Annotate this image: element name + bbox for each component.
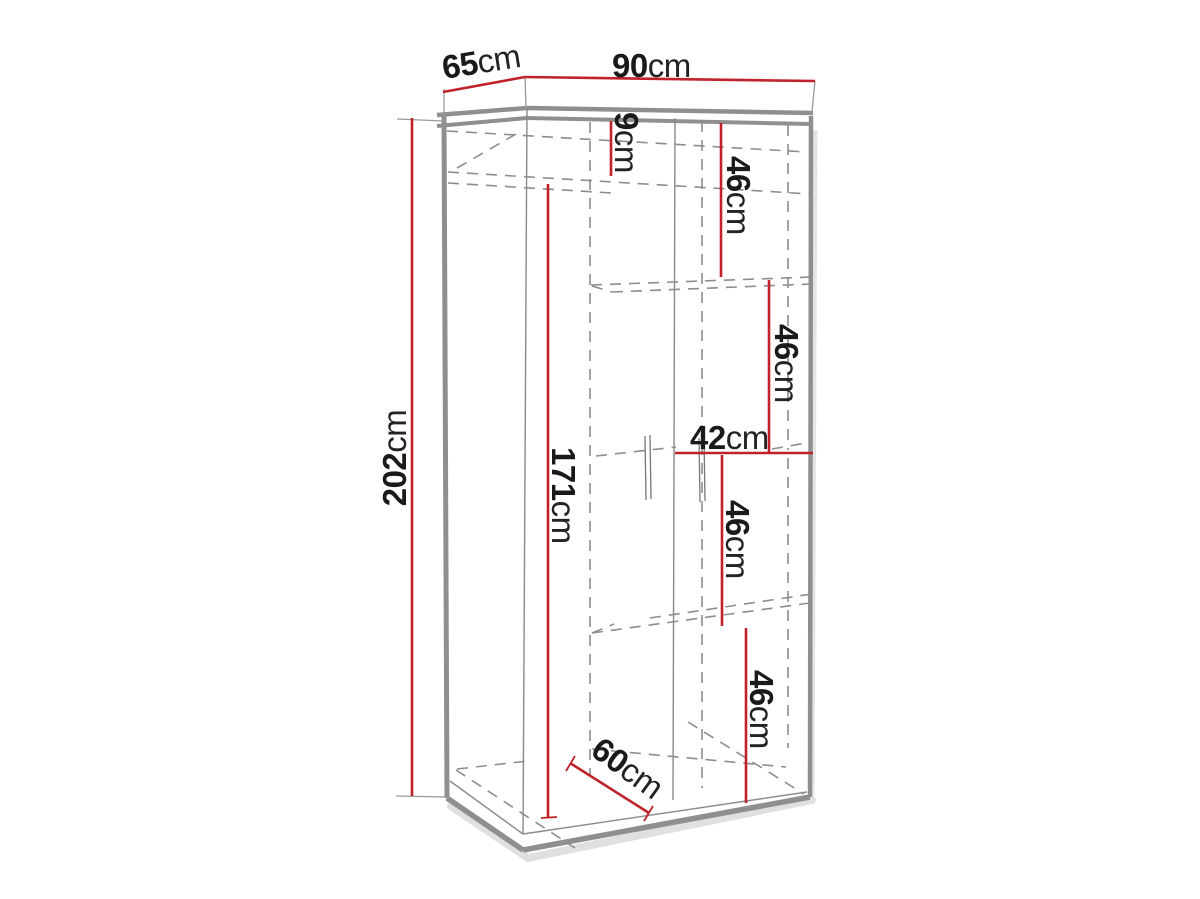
dimension-label-shelf-4: 46cm [743,670,780,749]
shelf2-back [612,284,812,292]
shelf3-right [772,442,812,449]
dimension-label-hanging-height: 171cm [545,447,582,544]
shelf4-depth [592,624,614,633]
top-left-depth-line [457,130,523,168]
front-left-corner-edge [523,108,527,834]
dimension-labels: 65cm 90cm 202cm 9cm 46cm 46cm 42cm 46cm … [376,37,805,806]
ext-width-right [812,81,815,112]
shelf3-left [596,447,676,456]
ext-width-left [525,77,526,108]
tick-hanging-bottom [541,817,557,818]
wardrobe-dimension-diagram: 65cm 90cm 202cm 9cm 46cm 46cm 42cm 46cm … [0,0,1200,899]
dimension-label-left-section: 60cm [585,730,670,806]
tick-height-top [397,119,444,121]
door-split-line [673,118,675,800]
floor-depth-left [456,770,575,848]
dimension-label-right-section: 42cm [690,419,769,456]
dimension-label-top-section: 9cm [608,112,645,173]
shelf4-front [592,603,810,633]
dimension-label-height: 202cm [376,410,413,507]
dimension-label-shelf-2: 46cm [768,324,805,403]
front-bottom-edge [523,797,810,850]
left-back-edge [444,113,447,798]
dimension-label-shelf-3: 46cm [719,500,756,579]
top-shelf-back [448,183,612,193]
right-front-edge [810,116,811,797]
tick-height-bottom [396,796,447,797]
floor-back-left [457,761,528,769]
left-door-handle [645,435,651,500]
diagram-canvas: 65cm 90cm 202cm 9cm 46cm 46cm 42cm 46cm … [0,0,1200,899]
shelf2-depth [592,286,612,292]
dimension-label-width: 90cm [612,47,691,84]
tick-left-section-end [644,806,653,821]
dimension-label-shelf-1: 46cm [720,156,757,235]
tick-left-section-start [566,756,575,771]
